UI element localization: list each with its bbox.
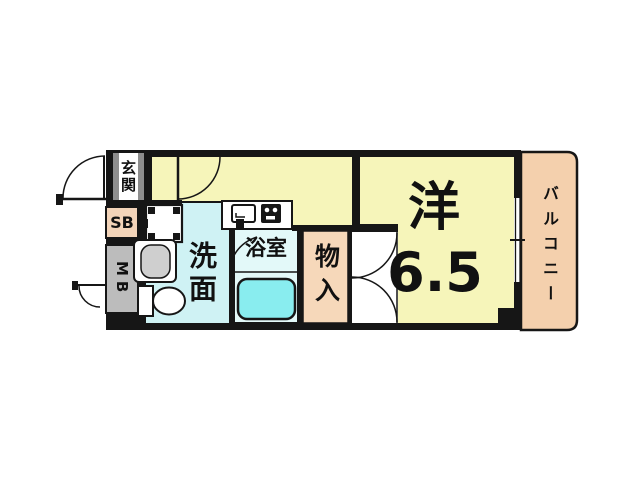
- meter-box-label: MB: [106, 247, 138, 311]
- toilet-tank: [138, 286, 153, 316]
- washroom-label: 洗面: [176, 228, 226, 320]
- gas-stove-icon: [261, 204, 281, 223]
- entrance-door-arc: [63, 156, 105, 198]
- washer-corner-bl: [148, 233, 155, 240]
- entrance-door-hinge: [56, 194, 63, 205]
- mb-door-arc: [79, 286, 100, 307]
- washbasin-icon: [134, 240, 176, 282]
- bathtub-icon: [238, 279, 295, 319]
- stove-grill-slot: [266, 216, 275, 220]
- wall-top: [106, 150, 521, 157]
- meter-box-door: [72, 281, 106, 307]
- sink-faucet: [236, 219, 244, 228]
- basin-bowl: [141, 245, 170, 278]
- entrance-door: [56, 156, 106, 205]
- wall-corridor-bottom: [292, 225, 360, 231]
- washer-corner-tr: [173, 207, 180, 214]
- wall-entrance-right: [143, 150, 152, 207]
- mb-door-hinge: [72, 281, 78, 290]
- entrance-label: 玄関: [114, 155, 143, 199]
- stove-burner-right: [273, 208, 278, 213]
- storage-label: 物入: [301, 233, 350, 321]
- washer-tap-nub: [141, 219, 148, 228]
- wall-bottom: [106, 323, 521, 330]
- western-room-size: 6.5: [352, 238, 518, 306]
- floor-plan-page: 玄関 SB MB 洗面 浴室 物入 洋 6.5 バルコニー: [0, 0, 640, 480]
- shoe-box-label: SB: [106, 209, 138, 236]
- balcony-label: バルコニー: [534, 166, 564, 328]
- bathroom-label: 浴室: [234, 233, 298, 261]
- stove-burner-left: [265, 208, 270, 213]
- western-room-label: 洋: [354, 166, 514, 238]
- kitchenette: [222, 201, 292, 229]
- wall-right-upper: [514, 150, 521, 198]
- washer-corner-tl: [148, 207, 155, 214]
- room-corner-pillar: [498, 308, 517, 326]
